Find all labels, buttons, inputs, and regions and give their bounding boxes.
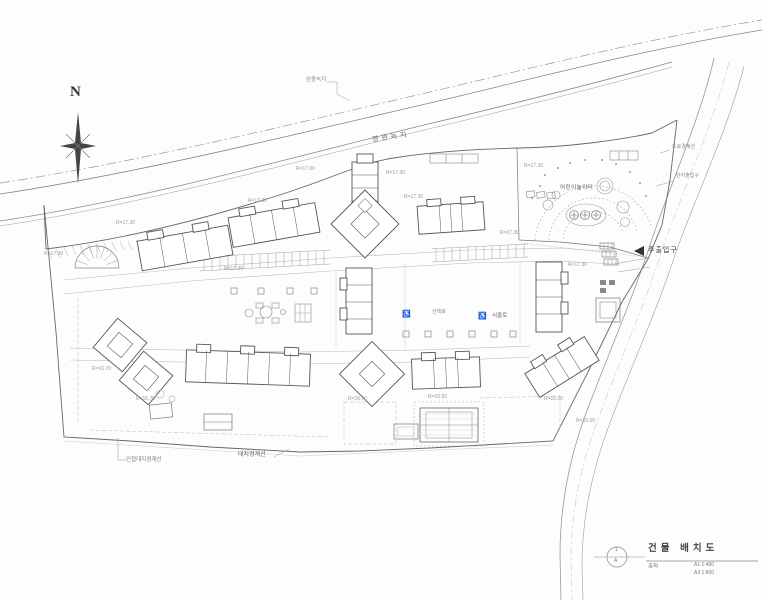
adjacent-site-boundary-label: 인접대지경계선 [126, 457, 161, 463]
buffer-green-label: 완충녹지 [306, 77, 326, 83]
building-slab-9 [411, 351, 480, 389]
north-label: N [70, 84, 81, 101]
scale-label: 축척 [648, 564, 658, 570]
right-road [560, 58, 744, 600]
central-plaza [231, 288, 516, 337]
buildings [93, 154, 599, 407]
building-slab-4 [417, 196, 485, 235]
spot-elevation: R=16.70 [92, 366, 111, 372]
spot-elevation: R=17.30 [568, 262, 587, 268]
tennis-court [394, 402, 484, 446]
walkway-label: 산책로 [432, 310, 446, 316]
spot-elevation: R=16.50 [428, 394, 447, 400]
site-boundary-label: 대지경계선 [238, 452, 266, 459]
building-tower-1 [331, 190, 399, 258]
main-entrance-label: 주출입구 [648, 247, 678, 255]
spot-elevation: R=17.00 [296, 166, 315, 172]
spot-elevation: R=17.30 [386, 170, 405, 176]
wheelchair-icon: ♿ [402, 310, 411, 318]
building-slab-6 [536, 262, 568, 332]
sheet-row: A [614, 559, 617, 565]
site-entrance-label: 단지출입구 [676, 174, 704, 180]
wheelchair-icon: ♿ [478, 312, 487, 320]
playground-label: 어린이놀이터 [560, 185, 593, 191]
top-road [0, 20, 762, 226]
spot-elevation: R=16.70 [136, 396, 155, 402]
spot-elevation: R=17.30 [224, 266, 243, 272]
annotation-box [430, 154, 478, 163]
play-equipment-icons [570, 211, 601, 220]
building-slab-5 [340, 268, 372, 334]
planter-row-b [403, 331, 516, 337]
utility-boxes [596, 280, 620, 322]
road-boundary-label: 도로경계선 [672, 145, 695, 151]
main-entrance-marker [600, 243, 644, 265]
spot-elevation: R=17.30 [248, 198, 267, 204]
scale-a3: A3 1:800 [694, 571, 714, 577]
planter-row-a [231, 288, 317, 294]
spot-elevation: R=17.30 [500, 230, 519, 236]
spot-elevation: R=16.70 [348, 396, 367, 402]
building-slab-2 [227, 196, 320, 248]
building-slab-8 [185, 344, 310, 386]
spot-elevation: R=17.30 [116, 220, 135, 226]
spot-elevation: R=16.00 [544, 396, 563, 402]
sheet-number: 1 [615, 548, 618, 554]
building-slab-7 [521, 331, 599, 398]
fountain-feature [256, 303, 286, 323]
site-plan-drawing [0, 0, 762, 600]
building-slab-1 [136, 218, 233, 270]
annotation-box-2 [610, 151, 638, 160]
circle-path-label: 서클로 [492, 313, 507, 319]
spot-elevation: R=17.30 [524, 163, 543, 169]
spot-elevation: R=17.00 [44, 251, 63, 257]
spot-elevation: R=17.30 [404, 194, 423, 200]
site-plan-sheet: N 경관녹지 완충녹지 어린이놀이터 주출입구 도로경계선 단지출입구 대지경계… [0, 0, 762, 600]
north-arrow-icon [60, 112, 96, 184]
drawing-title: 건물 배치도 [648, 544, 718, 555]
pergola [295, 304, 311, 322]
spot-elevation: R=16.00 [576, 418, 595, 424]
plaza-semicircle [75, 246, 119, 268]
scale-a1: A1 1:400 [694, 563, 714, 569]
